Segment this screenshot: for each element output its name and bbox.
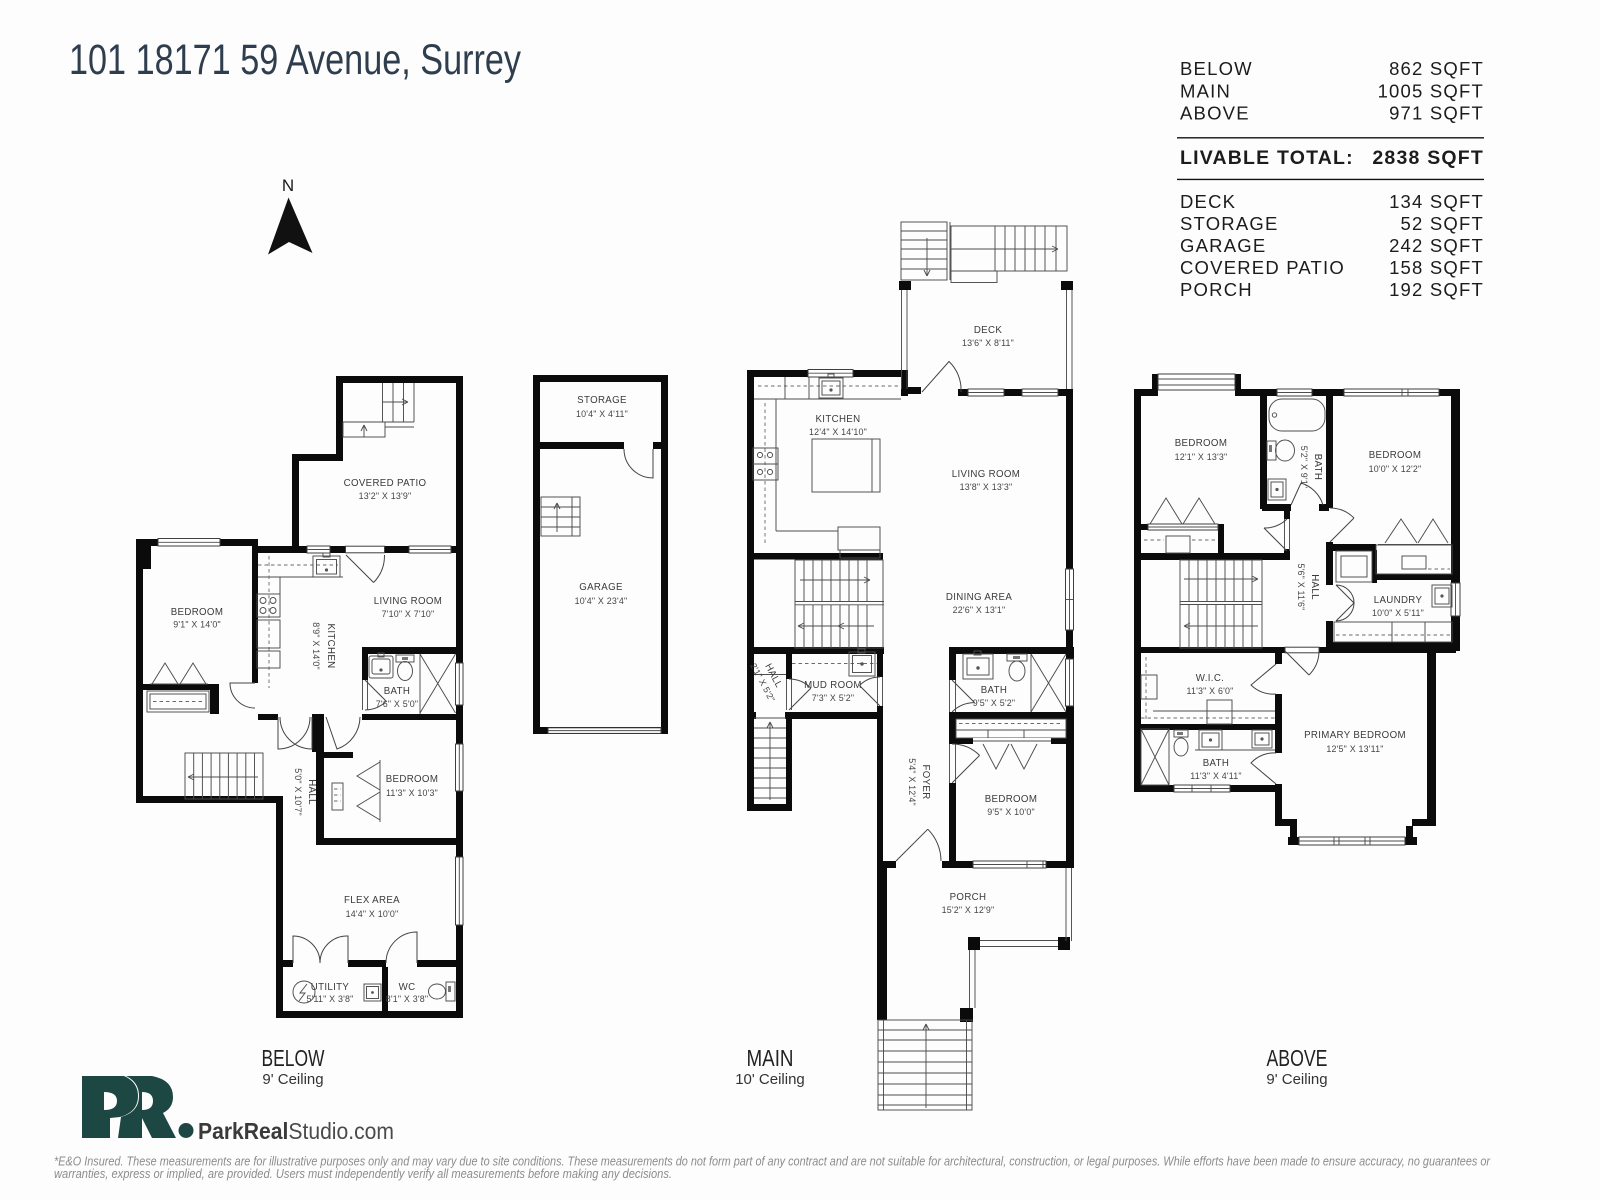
- svg-text:11'3" X 6'0": 11'3" X 6'0": [1187, 686, 1234, 696]
- svg-text:FOYER: FOYER: [920, 764, 931, 799]
- svg-text:14'4" X 10'0": 14'4" X 10'0": [346, 909, 399, 919]
- svg-text:ABOVE: ABOVE: [1267, 1045, 1328, 1071]
- svg-text:12'1" X 13'3": 12'1" X 13'3": [1175, 452, 1228, 462]
- svg-text:5'11" X 3'8": 5'11" X 3'8": [307, 994, 354, 1004]
- svg-text:ABOVE: ABOVE: [1180, 103, 1250, 124]
- svg-text:10'4" X 4'11": 10'4" X 4'11": [576, 409, 628, 419]
- svg-text:15'2" X 12'9": 15'2" X 12'9": [942, 905, 995, 915]
- svg-text:7'3" X 5'2": 7'3" X 5'2": [812, 693, 854, 703]
- svg-text:BATH: BATH: [1312, 454, 1323, 481]
- svg-text:192 SQFT: 192 SQFT: [1389, 279, 1484, 300]
- svg-text:11'3" X 4'11": 11'3" X 4'11": [1190, 771, 1241, 781]
- svg-text:PORCH: PORCH: [950, 892, 987, 903]
- svg-text:13'2" X 13'9": 13'2" X 13'9": [359, 491, 412, 501]
- svg-text:LAUNDRY: LAUNDRY: [1374, 595, 1423, 606]
- svg-text:8'9" X 14'0": 8'9" X 14'0": [311, 622, 321, 670]
- svg-text:LIVING ROOM: LIVING ROOM: [952, 469, 1020, 480]
- svg-text:PORCH: PORCH: [1180, 279, 1253, 300]
- svg-text:STORAGE: STORAGE: [1180, 213, 1279, 234]
- svg-text:STORAGE: STORAGE: [577, 395, 627, 406]
- svg-text:9'5" X 10'0": 9'5" X 10'0": [987, 807, 1035, 817]
- svg-text:BATH: BATH: [1203, 758, 1230, 769]
- svg-text:9' Ceiling: 9' Ceiling: [1266, 1071, 1327, 1088]
- svg-text:KITCHEN: KITCHEN: [816, 414, 861, 425]
- svg-text:5'4" X 12'4": 5'4" X 12'4": [907, 758, 917, 806]
- svg-text:2838 SQFT: 2838 SQFT: [1372, 147, 1484, 169]
- svg-text:UTILITY: UTILITY: [311, 982, 350, 993]
- svg-text:BEDROOM: BEDROOM: [1175, 438, 1228, 449]
- svg-text:10'0" X 12'2": 10'0" X 12'2": [1369, 464, 1422, 474]
- svg-text:10'4" X 23'4": 10'4" X 23'4": [575, 596, 628, 606]
- svg-text:9'5" X 5'2": 9'5" X 5'2": [973, 698, 1015, 708]
- svg-text:862 SQFT: 862 SQFT: [1389, 58, 1484, 79]
- svg-text:10'0" X 5'11": 10'0" X 5'11": [1372, 608, 1424, 618]
- svg-text:BELOW: BELOW: [1180, 58, 1253, 79]
- svg-text:KITCHEN: KITCHEN: [325, 624, 336, 669]
- svg-text:12'4" X 14'10": 12'4" X 14'10": [809, 427, 867, 437]
- svg-text:warranties, express or implied: warranties, express or implied, are prov…: [54, 1167, 672, 1181]
- svg-text:BEDROOM: BEDROOM: [985, 794, 1038, 805]
- svg-text:HALL: HALL: [306, 779, 317, 805]
- svg-text:8'1" X 3'8": 8'1" X 3'8": [386, 994, 428, 1004]
- svg-text:1005 SQFT: 1005 SQFT: [1378, 81, 1484, 102]
- svg-text:9'1" X 14'0": 9'1" X 14'0": [173, 620, 221, 630]
- svg-text:GARAGE: GARAGE: [1180, 235, 1266, 256]
- svg-text:DECK: DECK: [1180, 191, 1236, 212]
- svg-text:LIVABLE TOTAL:: LIVABLE TOTAL:: [1180, 147, 1354, 169]
- svg-text:N: N: [282, 176, 294, 195]
- svg-text:158 SQFT: 158 SQFT: [1389, 257, 1484, 278]
- svg-text:PRIMARY BEDROOM: PRIMARY BEDROOM: [1304, 730, 1406, 741]
- svg-text:5'6" X 11'6": 5'6" X 11'6": [1296, 564, 1306, 611]
- svg-text:971 SQFT: 971 SQFT: [1389, 103, 1484, 124]
- svg-text:12'5" X 13'11": 12'5" X 13'11": [1326, 744, 1383, 754]
- svg-text:52 SQFT: 52 SQFT: [1401, 213, 1484, 234]
- svg-text:MUD ROOM: MUD ROOM: [804, 680, 862, 691]
- svg-text:DINING AREA: DINING AREA: [946, 592, 1012, 603]
- svg-text:242 SQFT: 242 SQFT: [1389, 235, 1484, 256]
- svg-text:9' Ceiling: 9' Ceiling: [262, 1071, 323, 1088]
- svg-text:LIVING ROOM: LIVING ROOM: [374, 596, 442, 607]
- svg-text:BATH: BATH: [384, 686, 411, 697]
- svg-text:BEDROOM: BEDROOM: [386, 774, 439, 785]
- svg-text:134 SQFT: 134 SQFT: [1389, 191, 1484, 212]
- svg-text:FLEX AREA: FLEX AREA: [344, 895, 400, 906]
- svg-text:BEDROOM: BEDROOM: [1369, 450, 1422, 461]
- svg-text:COVERED PATIO: COVERED PATIO: [344, 478, 427, 489]
- svg-text:BELOW: BELOW: [262, 1045, 325, 1071]
- svg-text:7'10" X 7'10": 7'10" X 7'10": [382, 609, 435, 619]
- svg-text:13'8" X 13'3": 13'8" X 13'3": [960, 482, 1013, 492]
- svg-text:HALL: HALL: [1309, 574, 1320, 600]
- svg-text:22'6" X 13'1": 22'6" X 13'1": [953, 605, 1006, 615]
- svg-text:GARAGE: GARAGE: [579, 582, 623, 593]
- svg-text:BATH: BATH: [981, 685, 1008, 696]
- svg-text:5'2" X 9'1": 5'2" X 9'1": [1299, 446, 1309, 488]
- svg-text:101 18171 59 Avenue, Surrey: 101 18171 59 Avenue, Surrey: [69, 36, 521, 84]
- svg-text:13'6" X 8'11": 13'6" X 8'11": [962, 338, 1014, 348]
- svg-text:W.I.C.: W.I.C.: [1196, 673, 1224, 684]
- svg-text:BEDROOM: BEDROOM: [171, 607, 224, 618]
- svg-text:COVERED PATIO: COVERED PATIO: [1180, 257, 1345, 278]
- svg-text:WC: WC: [399, 982, 416, 993]
- svg-text:ParkRealStudio.com: ParkRealStudio.com: [198, 1118, 394, 1144]
- svg-text:11'3" X 10'3": 11'3" X 10'3": [386, 788, 438, 798]
- svg-text:DECK: DECK: [974, 325, 1003, 336]
- svg-text:5'0" X 10'7": 5'0" X 10'7": [293, 768, 303, 816]
- svg-text:MAIN: MAIN: [1180, 81, 1231, 102]
- svg-text:7'6" X 5'0": 7'6" X 5'0": [376, 699, 418, 709]
- svg-text:MAIN: MAIN: [747, 1045, 794, 1071]
- svg-text:10' Ceiling: 10' Ceiling: [735, 1071, 805, 1088]
